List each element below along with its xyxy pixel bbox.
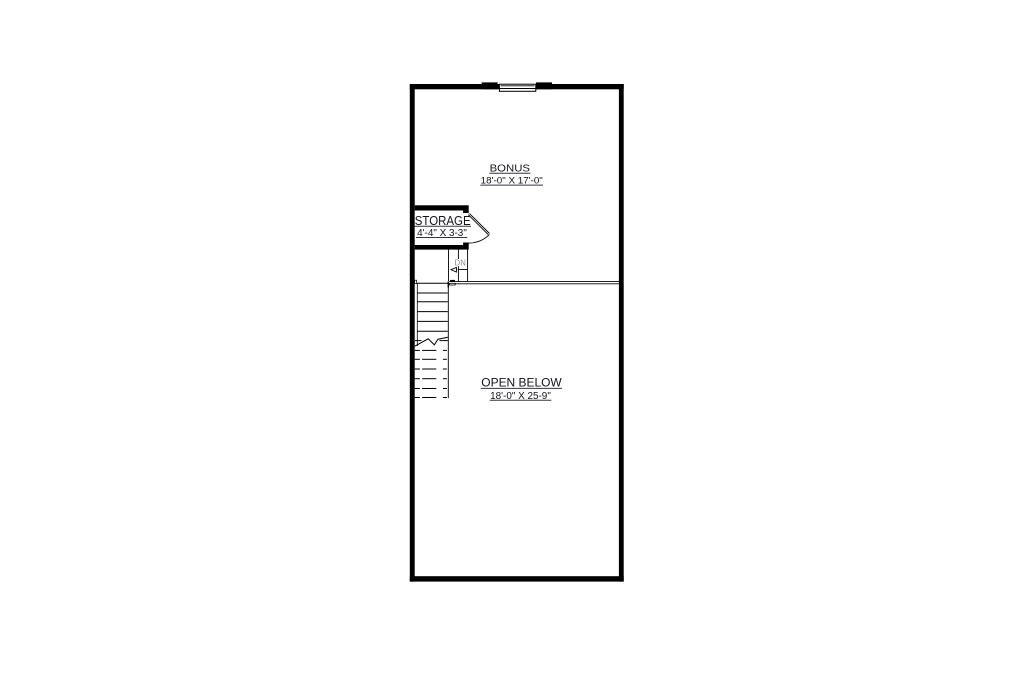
svg-text:BONUS: BONUS [490, 163, 531, 174]
svg-text:STORAGE: STORAGE [415, 214, 471, 228]
svg-text:DN: DN [455, 258, 467, 267]
svg-text:OPEN BELOW: OPEN BELOW [481, 375, 562, 389]
svg-text:18'-0" X 17'-0": 18'-0" X 17'-0" [481, 176, 543, 186]
